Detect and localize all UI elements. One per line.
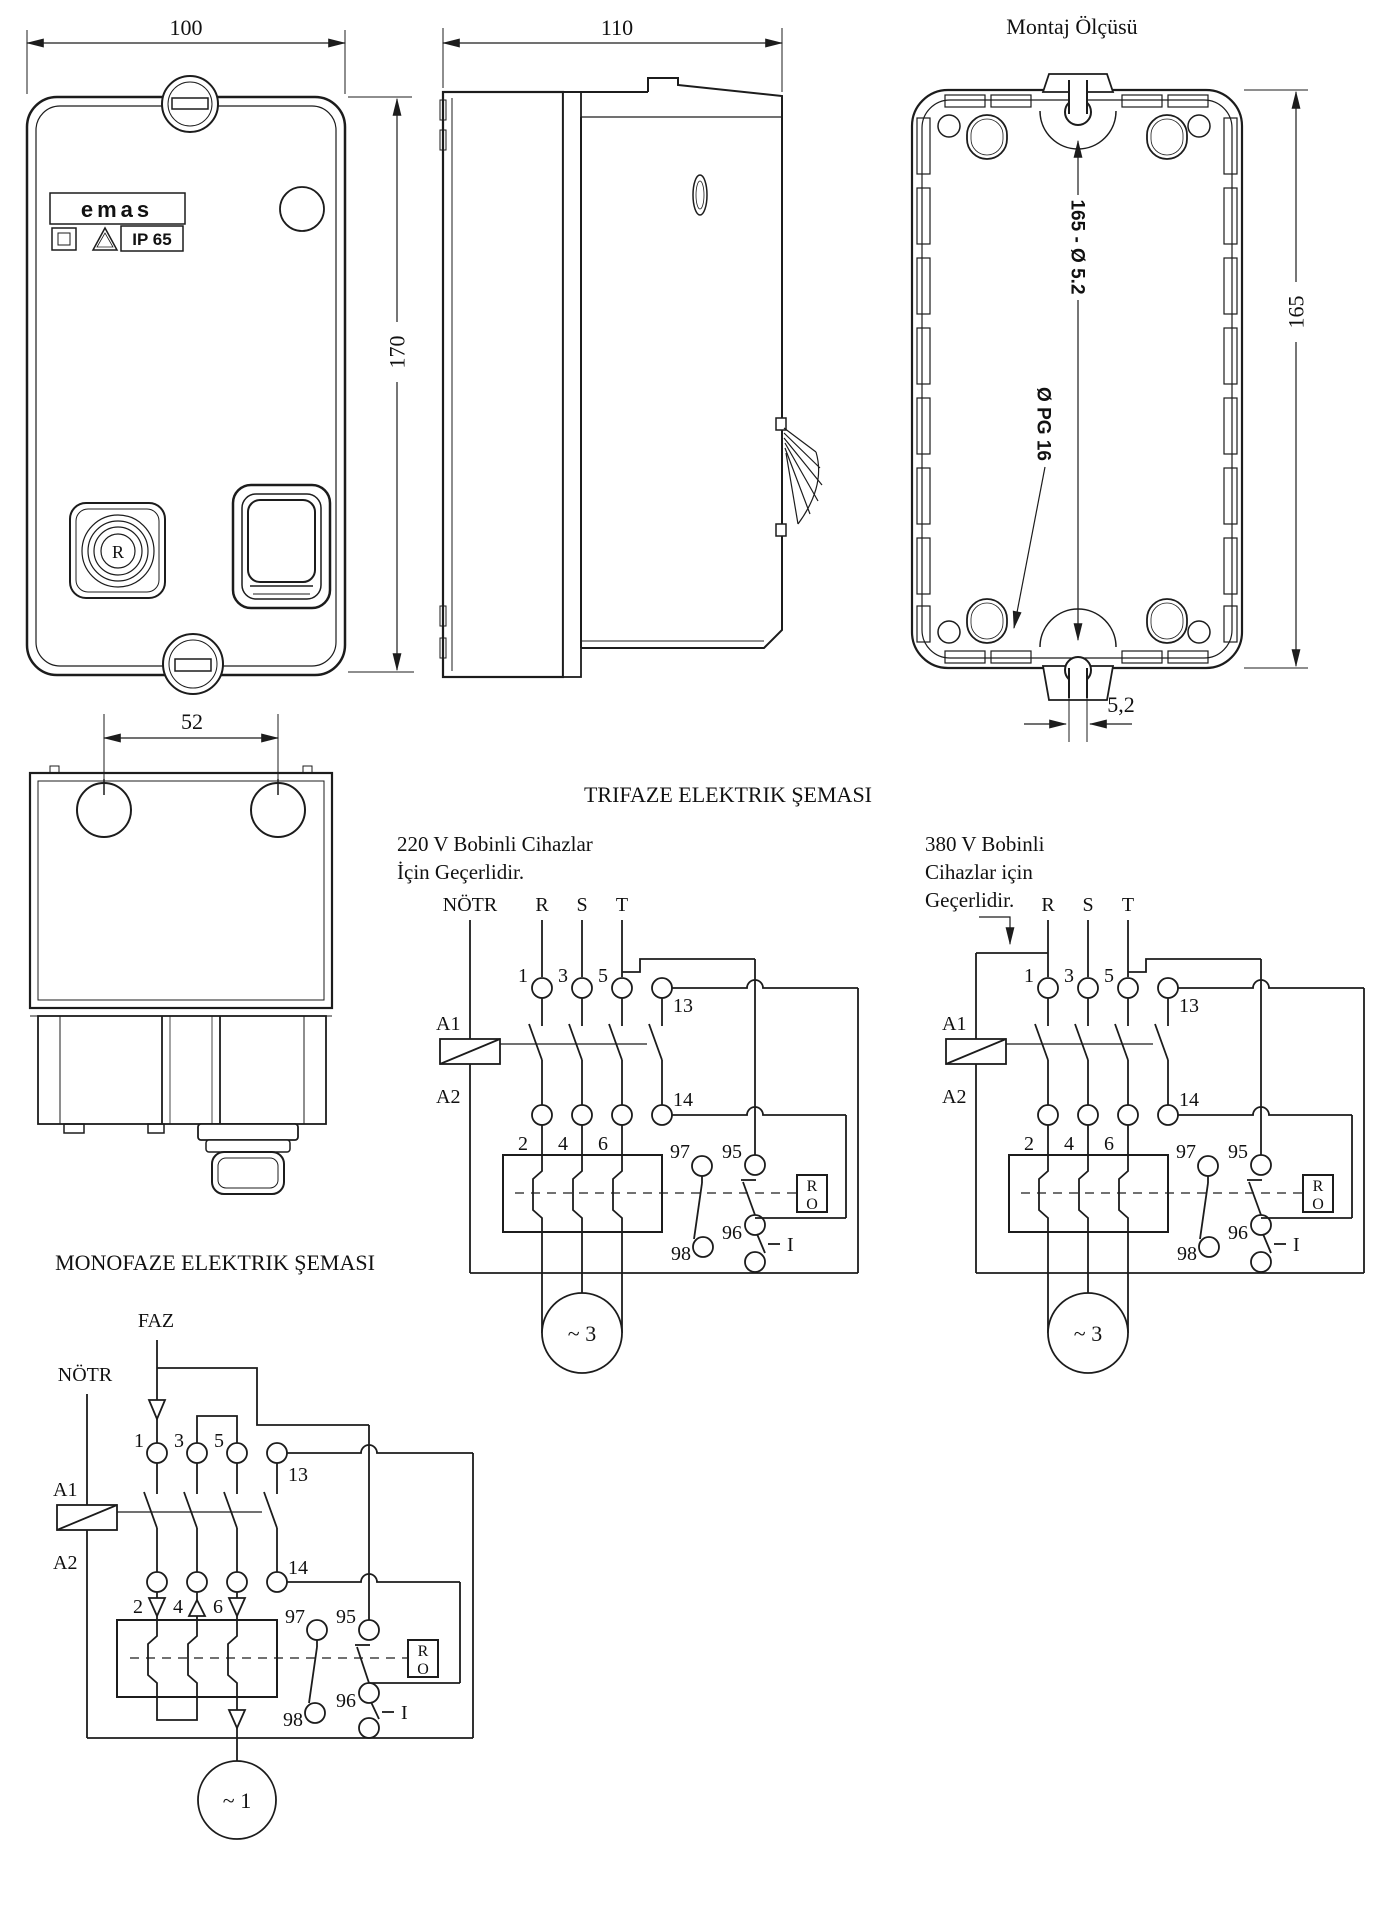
input-term-label-1: 1 bbox=[1024, 965, 1034, 987]
bottom-view bbox=[30, 766, 332, 1194]
input-term-label-5: 5 bbox=[598, 965, 608, 987]
phase-label-T: T bbox=[1122, 894, 1134, 916]
monofaze-circuit: FAZNÖTR135A1A224613149596I9798RO~ 1 bbox=[53, 1310, 473, 1839]
contact-blade bbox=[371, 1702, 379, 1719]
start-switch-label: I bbox=[1293, 1234, 1300, 1256]
terminal-5 bbox=[1118, 978, 1138, 998]
label-13: 13 bbox=[1179, 995, 1199, 1017]
drawing-canvas: emas IP 65 R bbox=[0, 0, 1398, 1920]
label-96: 96 bbox=[722, 1222, 742, 1244]
relay-box-r: R bbox=[807, 1178, 818, 1195]
terminal-4 bbox=[1078, 1105, 1098, 1125]
wire-hop bbox=[1178, 1107, 1352, 1115]
label-95: 95 bbox=[722, 1141, 742, 1163]
terminal-97 bbox=[1198, 1156, 1218, 1176]
technical-drawing-sheet: emas IP 65 R bbox=[0, 0, 1398, 1920]
output-term-label-4: 4 bbox=[1064, 1133, 1074, 1155]
bottom-cable-gland bbox=[198, 1124, 298, 1194]
terminal-1 bbox=[1038, 978, 1058, 998]
label-95: 95 bbox=[1228, 1141, 1248, 1163]
dim-165-label: 165 bbox=[1284, 296, 1309, 329]
terminal-14 bbox=[1158, 1105, 1178, 1125]
start-terminal bbox=[359, 1718, 379, 1738]
terminal-4 bbox=[187, 1572, 207, 1592]
control-tap bbox=[622, 959, 755, 972]
trifaze-220v-circuit: RSTNÖTR123456A1A29596I9798RO1314~ 3 bbox=[436, 893, 858, 1373]
label-14: 14 bbox=[673, 1089, 693, 1111]
output-term-label-2: 2 bbox=[1024, 1133, 1034, 1155]
flow-arrow bbox=[189, 1600, 205, 1616]
flow-arrow bbox=[229, 1710, 245, 1728]
contact-blade bbox=[1249, 1182, 1261, 1215]
contact-blade bbox=[1115, 1024, 1128, 1060]
mounting-keyhole-top bbox=[1040, 74, 1116, 149]
phase-label-R: R bbox=[1041, 894, 1055, 916]
contact-blade bbox=[184, 1492, 197, 1528]
terminal-5 bbox=[612, 978, 632, 998]
note-380-line1: 380 V Bobinli bbox=[925, 832, 1045, 856]
terminal-2 bbox=[532, 1105, 552, 1125]
terminal-3 bbox=[187, 1443, 207, 1463]
label-95: 95 bbox=[336, 1606, 356, 1628]
terminal-6 bbox=[1118, 1105, 1138, 1125]
dim-mount-height: 165 bbox=[1244, 90, 1309, 668]
dim-52-label: 52 bbox=[181, 709, 203, 734]
contact-blade bbox=[1200, 1183, 1208, 1239]
terminal-1 bbox=[532, 978, 552, 998]
label-13: 13 bbox=[673, 995, 693, 1017]
wire-hop bbox=[672, 980, 858, 988]
mounting-view: Montaj Ölçüsü bbox=[912, 14, 1309, 742]
terminal-3 bbox=[1078, 978, 1098, 998]
contact-blade bbox=[357, 1647, 369, 1683]
start-switch-label: I bbox=[787, 1234, 794, 1256]
terminal-14 bbox=[652, 1105, 672, 1125]
mounting-title: Montaj Ölçüsü bbox=[1006, 14, 1137, 39]
label-97: 97 bbox=[285, 1606, 305, 1628]
contact-blade bbox=[224, 1492, 237, 1528]
label-97: 97 bbox=[670, 1141, 690, 1163]
wire-hop bbox=[287, 1445, 473, 1453]
coil-label-a1: A1 bbox=[436, 1013, 460, 1035]
control-branch bbox=[157, 1368, 369, 1425]
control-tap bbox=[1128, 959, 1261, 972]
input-term-label-3: 3 bbox=[174, 1430, 184, 1452]
ip-rating-label: IP 65 bbox=[132, 230, 171, 249]
input-term-label-1: 1 bbox=[518, 965, 528, 987]
contact-blade bbox=[309, 1647, 317, 1703]
terminal-13 bbox=[652, 978, 672, 998]
terminal-2 bbox=[1038, 1105, 1058, 1125]
input-term-label-3: 3 bbox=[558, 965, 568, 987]
relay-box-o: O bbox=[1312, 1196, 1324, 1213]
contact-blade bbox=[144, 1492, 157, 1528]
label-13: 13 bbox=[288, 1464, 308, 1486]
label-97: 97 bbox=[1176, 1141, 1196, 1163]
output-term-label-4: 4 bbox=[558, 1133, 568, 1155]
note-220-line1: 220 V Bobinli Cihazlar bbox=[397, 832, 593, 856]
terminal-6 bbox=[612, 1105, 632, 1125]
terminal-13 bbox=[1158, 978, 1178, 998]
note-380-line2: Cihazlar için bbox=[925, 860, 1033, 884]
contact-blade bbox=[649, 1024, 662, 1060]
output-term-label-6: 6 bbox=[598, 1133, 608, 1155]
contact-blade bbox=[264, 1492, 277, 1528]
output-term-label-6: 6 bbox=[213, 1596, 223, 1618]
note-220-line2: İçin Geçerlidir. bbox=[397, 860, 524, 884]
label-14: 14 bbox=[288, 1557, 308, 1579]
coil-label-a1: A1 bbox=[942, 1013, 966, 1035]
start-switch-label: I bbox=[401, 1702, 408, 1724]
phase-label-R: R bbox=[535, 894, 549, 916]
start-terminal bbox=[1251, 1252, 1271, 1272]
motor-label: ~ 3 bbox=[1074, 1321, 1102, 1346]
output-term-label-2: 2 bbox=[133, 1596, 143, 1618]
terminal-13 bbox=[267, 1443, 287, 1463]
terminal-98 bbox=[1199, 1237, 1219, 1257]
motor-label: ~ 3 bbox=[568, 1321, 596, 1346]
input-term-label-3: 3 bbox=[1064, 965, 1074, 987]
terminal-95 bbox=[1251, 1155, 1271, 1175]
flow-arrow bbox=[149, 1598, 165, 1616]
contact-blade bbox=[1075, 1024, 1088, 1060]
coil-label-a2: A2 bbox=[436, 1086, 460, 1108]
terminal-98 bbox=[693, 1237, 713, 1257]
wire-hop bbox=[1178, 980, 1364, 988]
phase-label-S: S bbox=[1082, 894, 1093, 916]
contact-blade bbox=[1155, 1024, 1168, 1060]
terminal-2 bbox=[147, 1572, 167, 1592]
trifaze-380v-circuit: RST123456A1A29596I9798RO1314~ 3 bbox=[942, 894, 1364, 1373]
flow-arrow bbox=[229, 1598, 245, 1616]
note-380-line3: Geçerlidir. bbox=[925, 888, 1014, 912]
pole-link-2-4 bbox=[157, 1697, 197, 1720]
contact-blade bbox=[529, 1024, 542, 1060]
contact-blade bbox=[743, 1182, 755, 1215]
coil-label-a2: A2 bbox=[942, 1086, 966, 1108]
wire-hop bbox=[672, 1107, 846, 1115]
phase-label-faz: FAZ bbox=[138, 1310, 174, 1332]
relay-box-r: R bbox=[418, 1643, 429, 1660]
neutral-label: NÖTR bbox=[58, 1363, 113, 1386]
dim-pg16-label: Ø PG 16 bbox=[1032, 387, 1053, 461]
terminal-5 bbox=[227, 1443, 247, 1463]
terminal-96 bbox=[359, 1683, 379, 1703]
terminal-14 bbox=[267, 1572, 287, 1592]
supply-arrow bbox=[149, 1400, 165, 1419]
dim-165-d52-label: 165 - Ø 5.2 bbox=[1066, 199, 1087, 294]
reset-button: R bbox=[70, 503, 165, 598]
contact-blade bbox=[1263, 1234, 1271, 1253]
relay-box-o: O bbox=[417, 1661, 429, 1678]
phase-label-T: T bbox=[616, 894, 628, 916]
terminal-95 bbox=[359, 1620, 379, 1640]
terminal-97 bbox=[307, 1620, 327, 1640]
terminal-95 bbox=[745, 1155, 765, 1175]
motor-label: ~ 1 bbox=[223, 1788, 251, 1813]
side-view bbox=[440, 78, 822, 677]
start-terminal bbox=[745, 1252, 765, 1272]
contact-blade bbox=[569, 1024, 582, 1060]
front-bottom-screw bbox=[163, 634, 223, 694]
brand-logo-text: emas bbox=[81, 197, 153, 222]
terminal-97 bbox=[692, 1156, 712, 1176]
contact-blade bbox=[757, 1234, 765, 1253]
wire-hop bbox=[287, 1574, 460, 1582]
input-term-label-1: 1 bbox=[134, 1430, 144, 1452]
terminal-3 bbox=[572, 978, 592, 998]
front-view: emas IP 65 R bbox=[27, 76, 345, 694]
label-96: 96 bbox=[336, 1690, 356, 1712]
terminal-98 bbox=[305, 1703, 325, 1723]
terminal-1 bbox=[147, 1443, 167, 1463]
monofaze-title: MONOFAZE ELEKTRIK ŞEMASI bbox=[55, 1250, 375, 1275]
input-term-label-5: 5 bbox=[1104, 965, 1114, 987]
contact-blade bbox=[609, 1024, 622, 1060]
dim-170-label: 170 bbox=[385, 336, 410, 369]
rocker-switch bbox=[233, 485, 330, 608]
relay-box-r: R bbox=[1313, 1178, 1324, 1195]
label-14: 14 bbox=[1179, 1089, 1199, 1111]
terminal-6 bbox=[227, 1572, 247, 1592]
output-term-label-2: 2 bbox=[518, 1133, 528, 1155]
dim-100-label: 100 bbox=[170, 15, 203, 40]
neutral-label: NÖTR bbox=[443, 893, 498, 916]
label-96: 96 bbox=[1228, 1222, 1248, 1244]
terminal-4 bbox=[572, 1105, 592, 1125]
input-term-label-5: 5 bbox=[214, 1430, 224, 1452]
trifaze-title: TRIFAZE ELEKTRIK ŞEMASI bbox=[584, 782, 872, 807]
contact-blade bbox=[694, 1183, 702, 1239]
relay-box-o: O bbox=[806, 1196, 818, 1213]
reset-button-letter: R bbox=[112, 542, 124, 562]
dim-110-label: 110 bbox=[601, 15, 633, 40]
output-term-label-4: 4 bbox=[173, 1596, 183, 1618]
dim-52mm-label: 5,2 bbox=[1107, 692, 1135, 717]
dim-front-height: 170 bbox=[348, 97, 414, 672]
coil-label-a2: A2 bbox=[53, 1552, 77, 1574]
label-98: 98 bbox=[1177, 1243, 1197, 1265]
output-term-label-6: 6 bbox=[1104, 1133, 1114, 1155]
front-top-screw bbox=[162, 76, 218, 132]
phase-label-S: S bbox=[576, 894, 587, 916]
dim-side-depth: 110 bbox=[443, 15, 782, 92]
link-callout-arrow bbox=[979, 917, 1010, 944]
label-98: 98 bbox=[283, 1709, 303, 1731]
contact-blade bbox=[1035, 1024, 1048, 1060]
label-98: 98 bbox=[671, 1243, 691, 1265]
coil-label-a1: A1 bbox=[53, 1479, 77, 1501]
